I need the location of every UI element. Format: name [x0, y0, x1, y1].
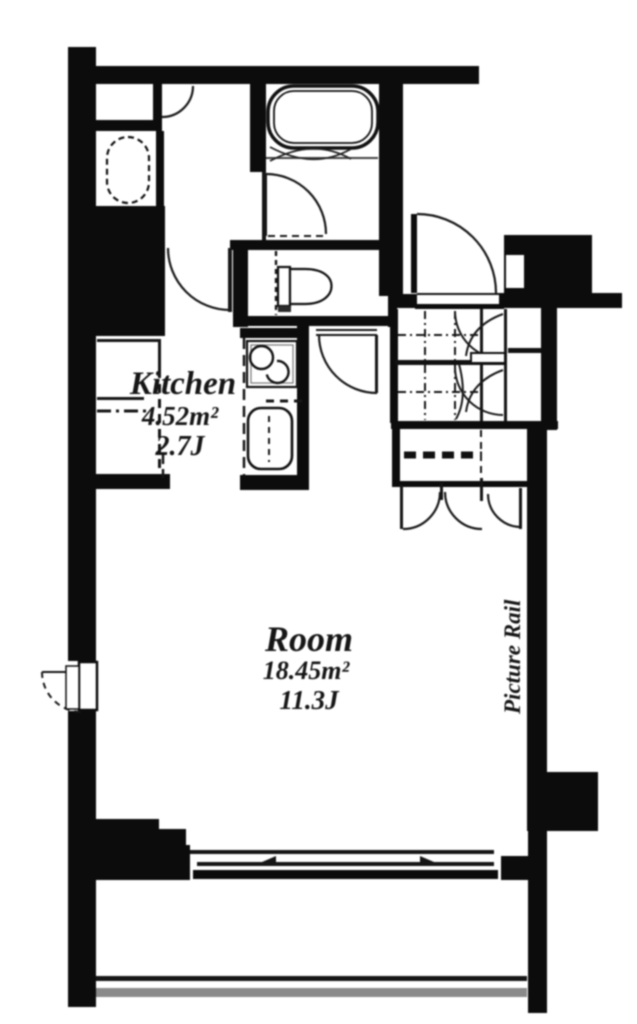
svg-text:Room: Room: [264, 619, 353, 659]
svg-text:Kitchen: Kitchen: [129, 366, 236, 402]
svg-text:Picture Rail: Picture Rail: [500, 599, 525, 715]
svg-text:18.45m²: 18.45m²: [263, 656, 351, 685]
svg-text:4.52m²: 4.52m²: [141, 401, 219, 431]
svg-text:2.7J: 2.7J: [155, 431, 206, 462]
svg-text:11.3J: 11.3J: [279, 685, 340, 715]
